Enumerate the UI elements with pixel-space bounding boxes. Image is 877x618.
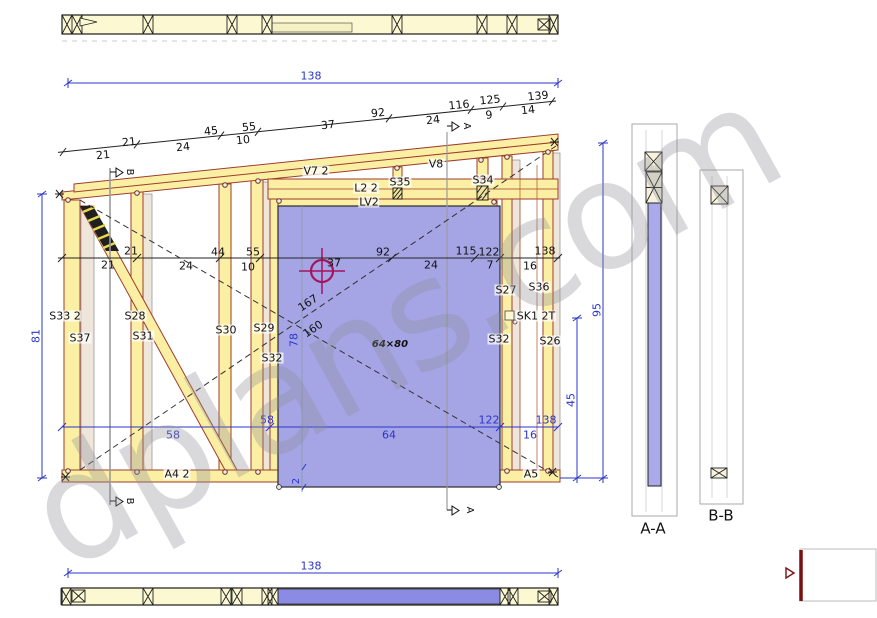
mid-dim: 122 — [479, 247, 500, 258]
section-b-title: B-B — [708, 509, 733, 524]
framing-plan-sheet: 138 138 81 95 45 78 2 167 160 64×80 21 4… — [0, 0, 877, 618]
mid-dim: 138 — [535, 246, 556, 257]
label-s29: S29 — [253, 323, 276, 334]
incline-dim: 92 — [370, 107, 385, 119]
mid-dim: 92 — [376, 247, 390, 258]
incline-dim: 116 — [448, 98, 470, 111]
label-s31: S31 — [132, 331, 155, 342]
label-a5-plate: A5 — [523, 469, 540, 480]
bottom-dim: 16 — [523, 430, 537, 441]
bottom-dim: 58 — [166, 430, 180, 441]
incline-dim: 21 — [121, 136, 136, 148]
marker-a-bottom: A — [464, 507, 474, 514]
mid-dim: 115 — [456, 246, 477, 257]
bottom-plan-strip — [61, 588, 558, 605]
incline-dim: 21 — [95, 149, 110, 161]
section-a-title: A-A — [640, 522, 665, 537]
bottom-dim: 64 — [382, 430, 396, 441]
label-sk1: SK1 2T — [516, 311, 556, 322]
label-s27: S27 — [495, 285, 518, 296]
incline-dim: 14 — [520, 104, 535, 116]
label-l2-beam: L2 2 — [353, 183, 379, 194]
top-plan-strip — [62, 15, 558, 41]
incline-dim: 139 — [527, 89, 549, 102]
section-b-b — [700, 170, 743, 504]
marker-b-bottom: B — [124, 498, 134, 505]
bottom-dim: 122 — [479, 415, 500, 426]
mid-dim: 44 — [211, 247, 225, 258]
mid-dim: 37 — [327, 258, 341, 269]
opening-size-label: 64×80 — [372, 340, 408, 350]
mid-dim: 7 — [487, 260, 494, 271]
label-s26: S26 — [539, 336, 562, 347]
label-v7-plate: V7 2 — [302, 166, 329, 177]
dim-overall-width-bottom: 138 — [301, 561, 322, 572]
label-s30: S30 — [215, 325, 238, 336]
label-lv2-header: LV2 — [358, 197, 379, 208]
label-s32-left: S32 — [261, 353, 284, 364]
label-s37: S37 — [69, 333, 92, 344]
incline-dim: 24 — [175, 141, 190, 153]
incline-dim: 45 — [203, 125, 218, 137]
label-s33: S33 2 — [48, 311, 81, 322]
marker-a-top: A — [461, 123, 471, 130]
marker-b-top: B — [124, 169, 134, 176]
label-s35: S35 — [389, 177, 412, 188]
dim-sill-offset: 2 — [292, 478, 302, 484]
mid-dim: 24 — [179, 261, 193, 272]
mid-dim: 16 — [523, 261, 537, 272]
mid-dim: 21 — [124, 246, 138, 257]
mid-dim: 24 — [424, 260, 438, 271]
incline-dim: 24 — [425, 114, 440, 126]
dim-overall-width-top: 138 — [301, 71, 322, 82]
label-s34: S34 — [472, 175, 495, 186]
incline-dim: 10 — [235, 134, 250, 146]
mid-dim: 10 — [241, 262, 255, 273]
incline-dim: 125 — [479, 93, 501, 106]
incline-dim: 9 — [485, 109, 493, 121]
label-s36: S36 — [528, 282, 551, 293]
bottom-dim: 138 — [536, 415, 557, 426]
dim-left-height: 81 — [31, 329, 42, 343]
mid-dim: 55 — [246, 247, 260, 258]
label-a4-plate: A4 2 — [163, 469, 190, 480]
dim-right-inner-height: 45 — [566, 393, 577, 407]
incline-dim: 55 — [241, 121, 256, 133]
mid-dim: 21 — [101, 260, 115, 271]
section-a-a — [632, 124, 677, 516]
bottom-dim: 58 — [260, 415, 274, 426]
label-s32-right: S32 — [488, 334, 511, 345]
label-s28: S28 — [124, 311, 147, 322]
dim-opening-height: 78 — [289, 333, 300, 347]
dim-right-height: 95 — [592, 303, 603, 317]
detail-box — [786, 549, 876, 601]
incline-dim: 37 — [320, 119, 335, 131]
label-v8-plate: V8 — [428, 159, 445, 170]
